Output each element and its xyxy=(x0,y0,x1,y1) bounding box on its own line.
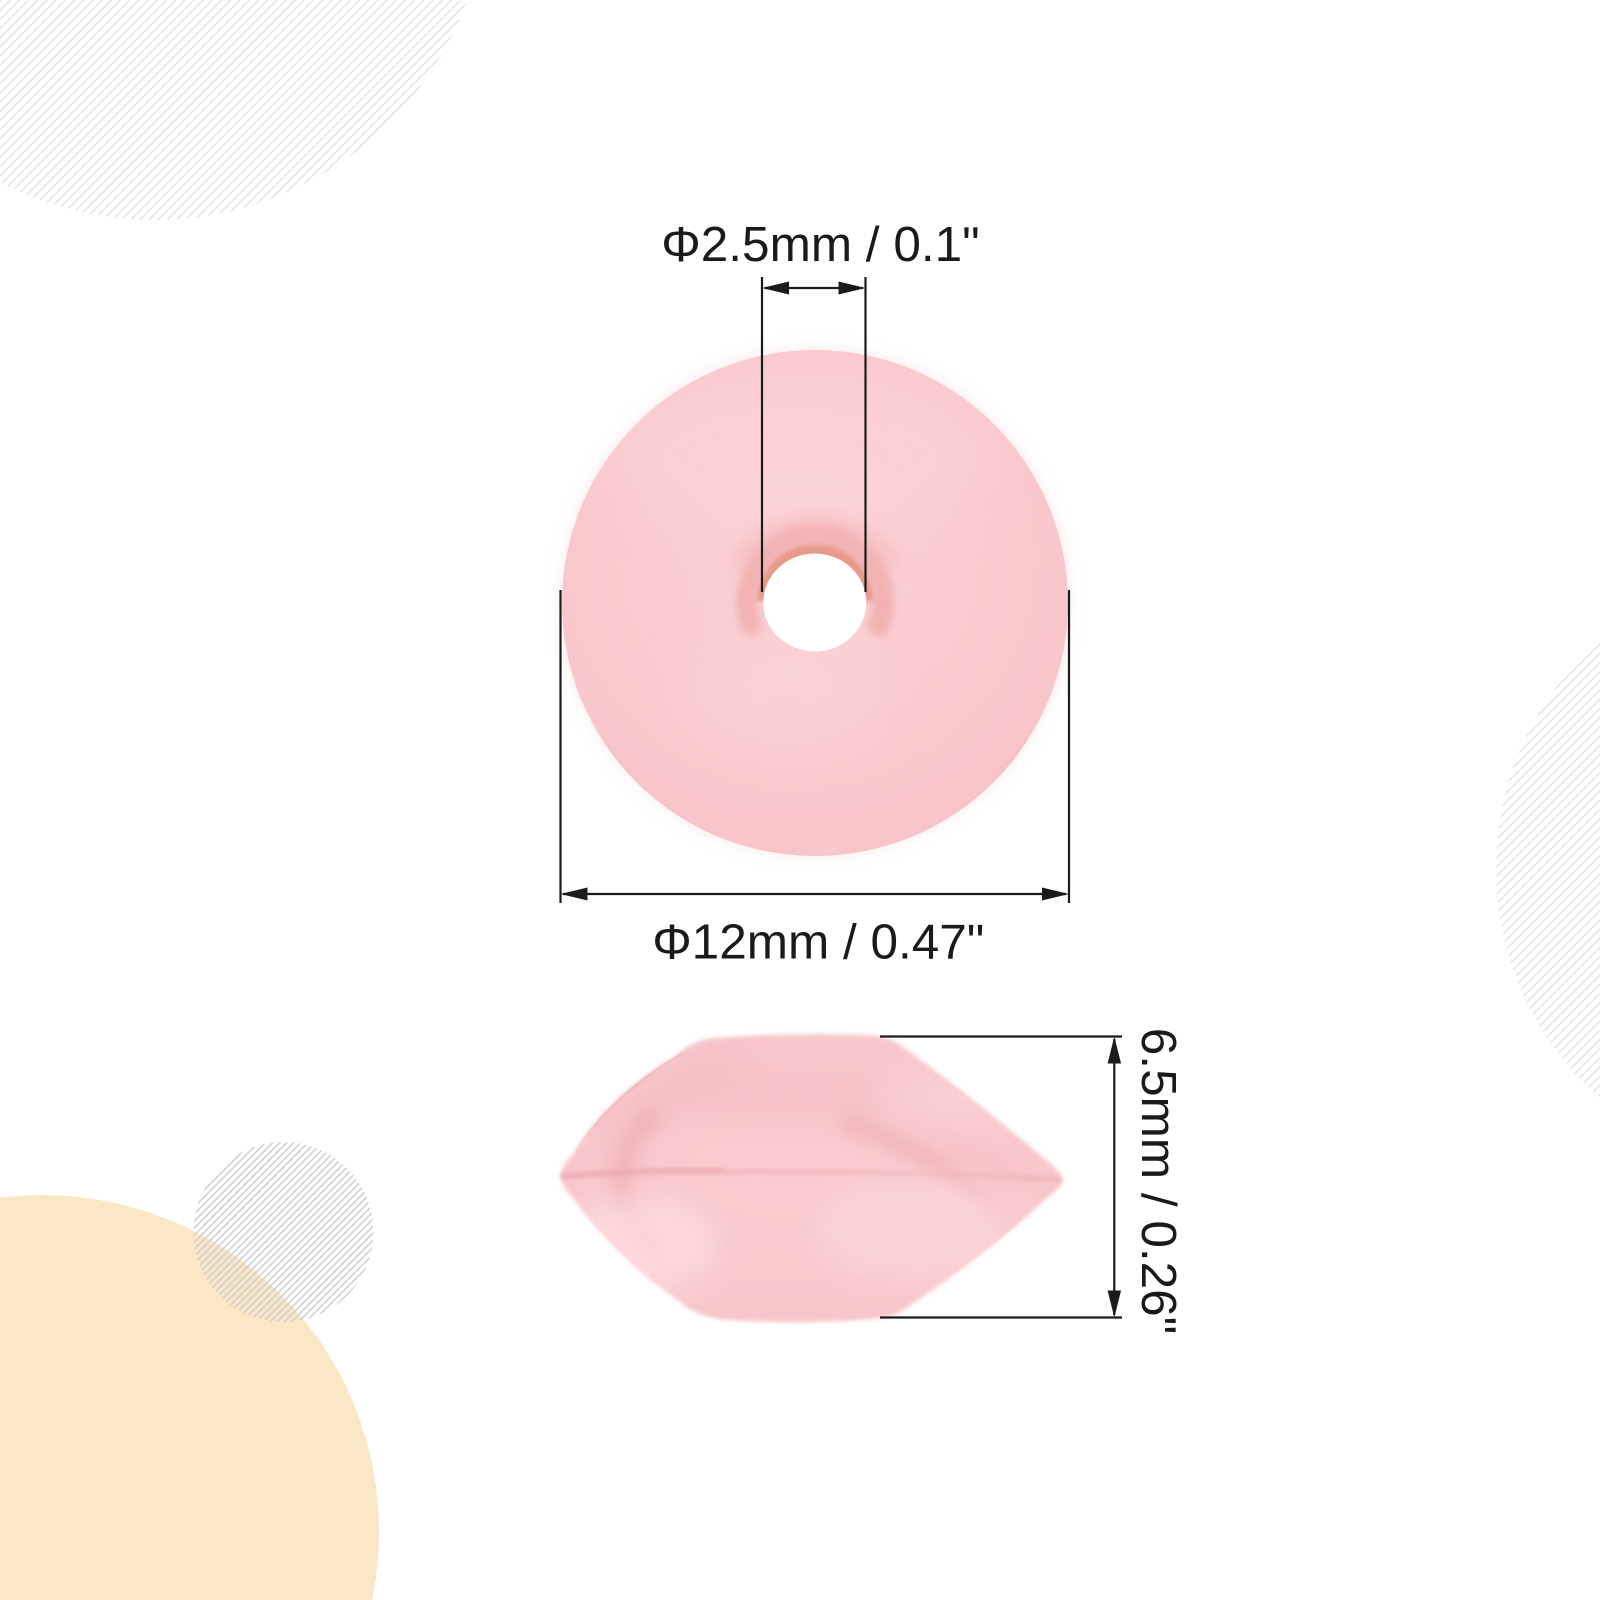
svg-text:6.5mm / 0.26": 6.5mm / 0.26" xyxy=(1131,1028,1186,1334)
svg-text:Φ2.5mm / 0.1": Φ2.5mm / 0.1" xyxy=(661,217,979,272)
svg-text:Φ12mm / 0.47": Φ12mm / 0.47" xyxy=(652,915,984,970)
